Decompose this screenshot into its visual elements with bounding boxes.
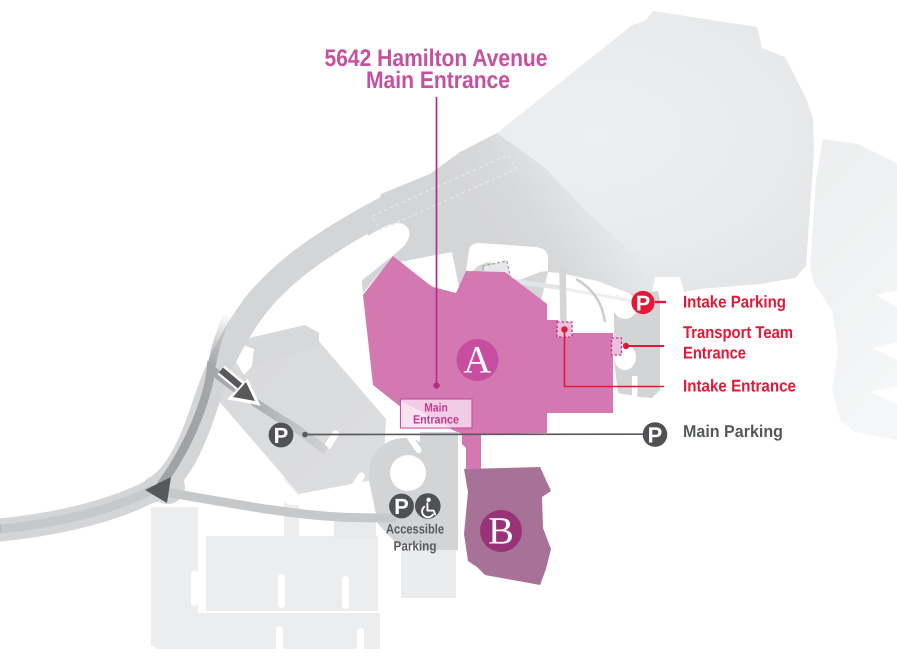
svg-text:Parking: Parking (394, 539, 437, 554)
svg-text:Transport Team: Transport Team (683, 323, 793, 342)
svg-text:Main Parking: Main Parking (683, 422, 783, 441)
svg-text:P: P (648, 423, 663, 448)
svg-text:P: P (636, 291, 650, 315)
svg-text:Main Entrance: Main Entrance (366, 67, 510, 94)
svg-text:Entrance: Entrance (683, 344, 746, 363)
svg-text:Accessible: Accessible (386, 522, 444, 537)
svg-text:Intake Parking: Intake Parking (683, 293, 786, 312)
svg-text:B: B (488, 511, 514, 553)
svg-text:P: P (394, 494, 409, 519)
svg-text:P: P (274, 423, 289, 448)
svg-text:A: A (463, 340, 491, 382)
svg-text:Entrance: Entrance (413, 413, 459, 427)
svg-text:Intake Entrance: Intake Entrance (683, 377, 796, 396)
